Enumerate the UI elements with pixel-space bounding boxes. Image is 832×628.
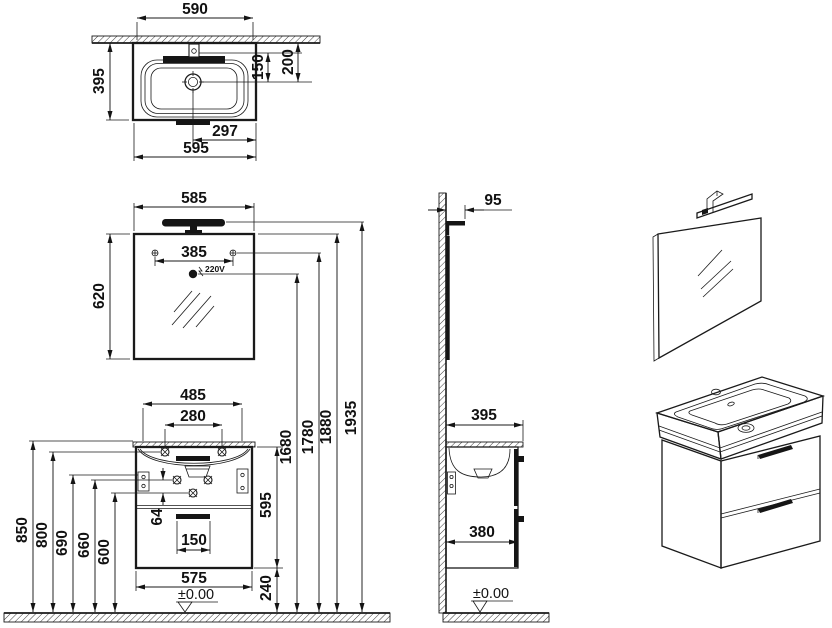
front-dim-850: 850 [14, 517, 31, 543]
iso-drawer-handles [758, 445, 793, 513]
side-datum-label: ±0.00 [473, 586, 509, 602]
side-dim-380: 380 [469, 524, 495, 541]
side-view: 95 395 380 ±0.00 [428, 192, 549, 622]
front-mount-holes [161, 448, 226, 456]
side-floor-hatch [443, 613, 549, 622]
side-light-fixture [446, 221, 465, 236]
plan-dim-297: 297 [212, 123, 238, 140]
side-dim-395: 395 [471, 407, 497, 424]
front-datum-label: ±0.00 [178, 587, 214, 603]
iso-cabinet-side [662, 440, 721, 568]
front-dim-595: 595 [258, 492, 275, 518]
front-dim-485: 485 [180, 387, 206, 404]
front-left-connection-box [138, 472, 149, 491]
front-dim-600: 600 [96, 539, 113, 565]
iso-mirror-glass-lines [698, 250, 733, 297]
front-mirror-glass-lines [172, 291, 214, 328]
front-dim-575: 575 [181, 570, 207, 587]
front-socket-label: 220V [205, 264, 225, 274]
front-power-socket: 220V [189, 264, 225, 278]
plan-dim-200: 200 [280, 49, 297, 75]
iso-mirror-panel [658, 218, 761, 358]
front-dim-1880: 1880 [318, 410, 335, 444]
plan-dim-590: 590 [182, 1, 208, 18]
side-connection-box [448, 472, 456, 494]
front-dim-385: 385 [181, 244, 207, 261]
plan-dim-395: 395 [91, 68, 108, 94]
iso-mirror-light [697, 191, 752, 218]
front-datum: ±0.00 [176, 587, 218, 612]
front-dim-800: 800 [34, 522, 51, 548]
front-lower-handle [176, 514, 210, 519]
plan-view: 590 395 150 200 297 595 [91, 1, 320, 161]
side-dim-95: 95 [484, 192, 502, 209]
front-dim-620: 620 [91, 283, 108, 309]
front-floor-hatch [4, 613, 390, 622]
iso-drawer-divider [721, 489, 820, 518]
front-upper-handle [176, 456, 210, 461]
iso-mirror-view [653, 191, 761, 361]
front-dim-280: 280 [180, 408, 206, 425]
iso-vanity-view [657, 377, 823, 568]
front-dim-150: 150 [181, 532, 207, 549]
front-dim-660: 660 [76, 532, 93, 558]
front-dim-585: 585 [181, 190, 207, 207]
front-right-connection-box [237, 469, 248, 493]
side-drawer-fronts [514, 449, 524, 567]
front-dim-1935: 1935 [343, 400, 360, 435]
side-wall-hatch [439, 193, 446, 613]
front-supply-holes [173, 476, 212, 497]
front-dim-240: 240 [258, 575, 275, 601]
side-countertop [446, 442, 523, 447]
plan-drain [182, 71, 204, 93]
front-dim-1780: 1780 [300, 420, 317, 454]
technical-drawing-canvas: 590 395 150 200 297 595 585 [0, 0, 832, 628]
side-mirror [447, 236, 450, 360]
front-light-fixture [162, 219, 225, 235]
side-datum: ±0.00 [471, 586, 513, 612]
plan-basin-bowl [141, 60, 248, 117]
side-cabinet [446, 447, 518, 568]
front-view: 585 385 220V 620 1680 1780 1880 1935 [4, 190, 390, 622]
plan-faucet [189, 44, 199, 57]
plan-dim-595: 595 [183, 140, 209, 157]
front-dim-64: 64 [149, 508, 166, 526]
front-overflow-cover [185, 466, 210, 477]
plan-dim-150: 150 [250, 54, 267, 80]
technical-drawing-page: 590 395 150 200 297 595 585 [0, 0, 832, 628]
side-basin-profile [449, 448, 510, 478]
front-dim-690: 690 [54, 530, 71, 556]
